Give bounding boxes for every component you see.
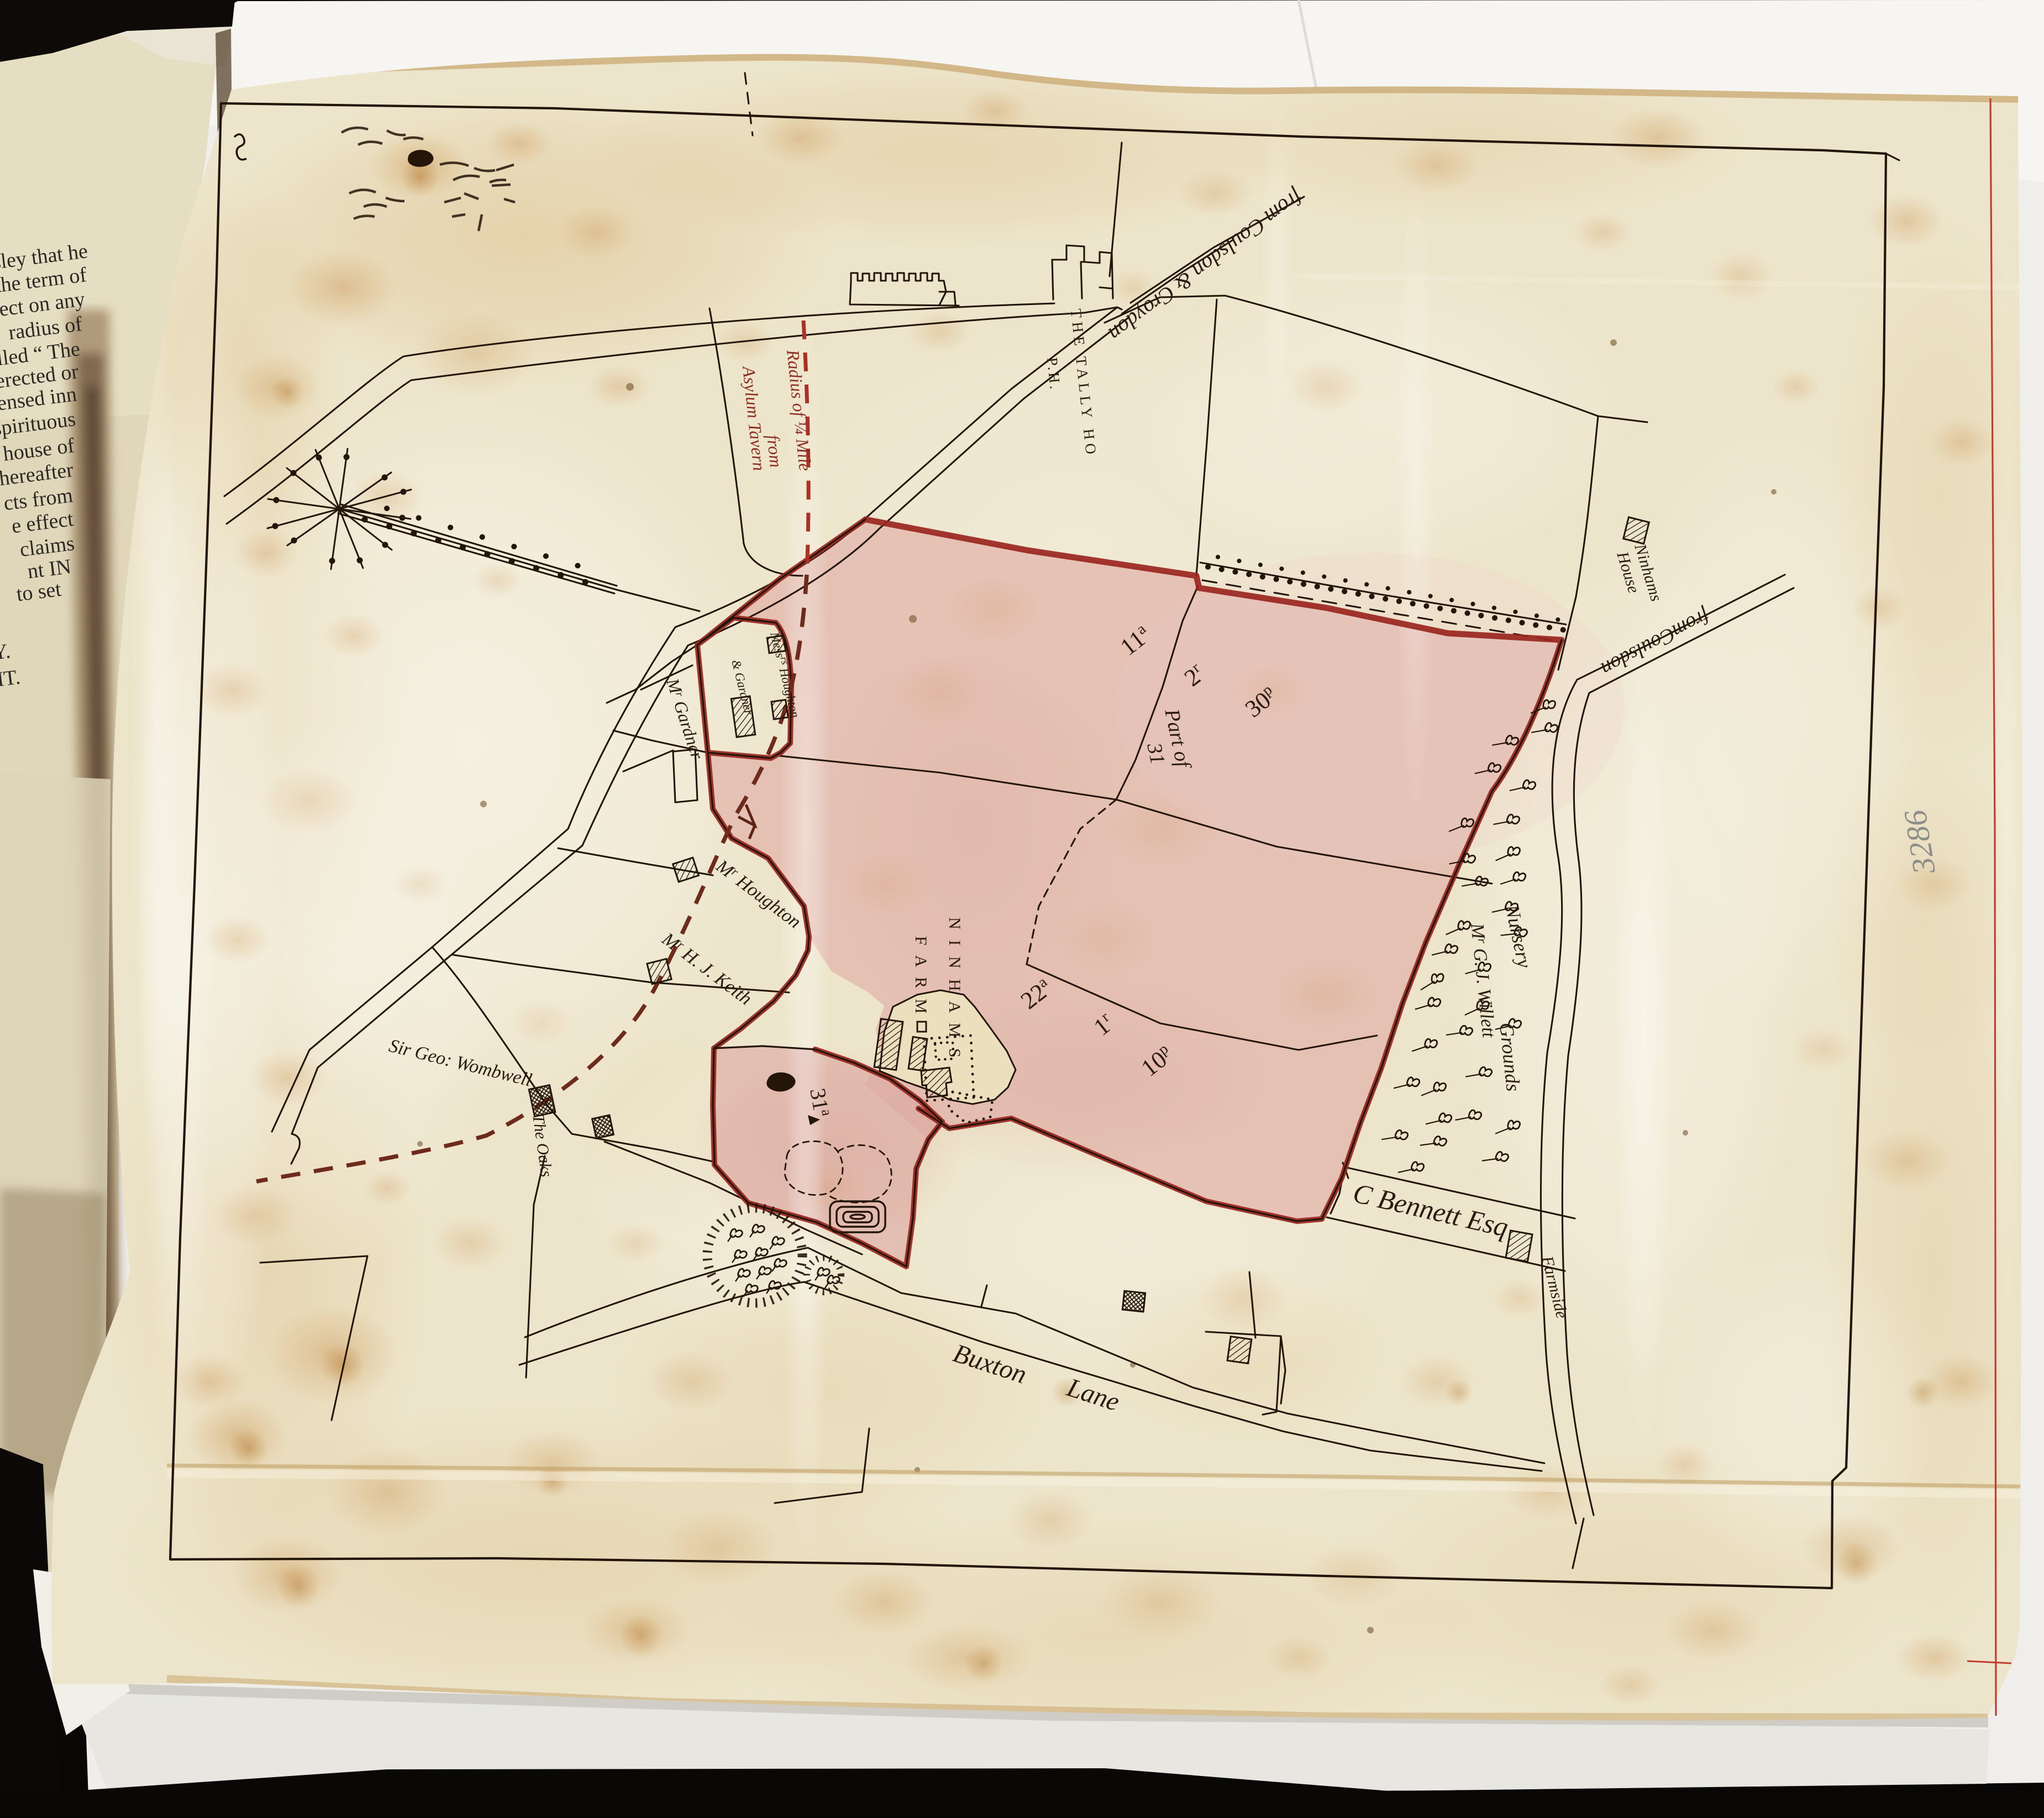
svg-text:N I N H A M S: N I N H A M S: [945, 917, 964, 1061]
svg-text:F A R M: F A R M: [912, 936, 930, 1017]
svg-text:HT.: HT.: [0, 665, 22, 692]
svg-text:P.H.: P.H.: [1044, 356, 1064, 392]
